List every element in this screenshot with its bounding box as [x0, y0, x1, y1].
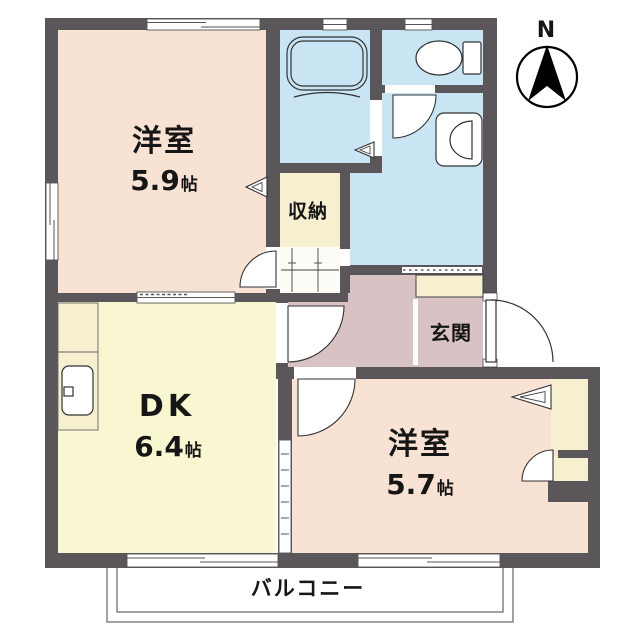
kitchen-counter	[58, 303, 98, 430]
window-toilet	[405, 19, 432, 30]
room-size-dk: 6.4帖	[134, 433, 202, 461]
room-label-dk: DK	[139, 392, 195, 422]
washbasin	[436, 113, 482, 166]
sliding-door-western-1-dk	[137, 292, 235, 303]
window-dk-balcony	[127, 554, 278, 567]
window-dk-western-2	[279, 440, 291, 553]
room-label-western-1: 洋室	[132, 127, 196, 157]
window-western-1-top	[147, 19, 260, 30]
window-western-1-left	[46, 183, 58, 260]
room-fills	[58, 30, 588, 553]
floor-plan-drawing	[0, 0, 640, 640]
entrance-door	[486, 300, 553, 362]
room-label-balcony: バルコニー	[251, 579, 366, 600]
closet-western-2	[551, 379, 588, 450]
toilet	[416, 41, 481, 75]
room-size-western-1: 5.9帖	[130, 167, 198, 195]
floor-plan: 洋室 5.9帖 収納 玄関 DK 6.4帖 洋室 5.7帖 バルコニー N	[0, 0, 640, 640]
compass-north-label: N	[537, 20, 555, 42]
north-compass-icon	[517, 45, 577, 107]
room-label-western-2: 洋室	[388, 430, 452, 460]
room-label-closet: 収納	[288, 203, 328, 222]
room-label-entrance: 玄関	[430, 323, 472, 343]
window-bathroom	[323, 19, 347, 30]
shoe-cabinet	[416, 275, 483, 297]
storage-western-2	[553, 456, 588, 482]
kitchen-tap	[64, 387, 73, 396]
window-western-2-balcony	[358, 554, 500, 567]
room-western-1	[58, 30, 266, 293]
entrance-step	[413, 299, 418, 365]
room-size-western-2: 5.7帖	[386, 471, 454, 499]
